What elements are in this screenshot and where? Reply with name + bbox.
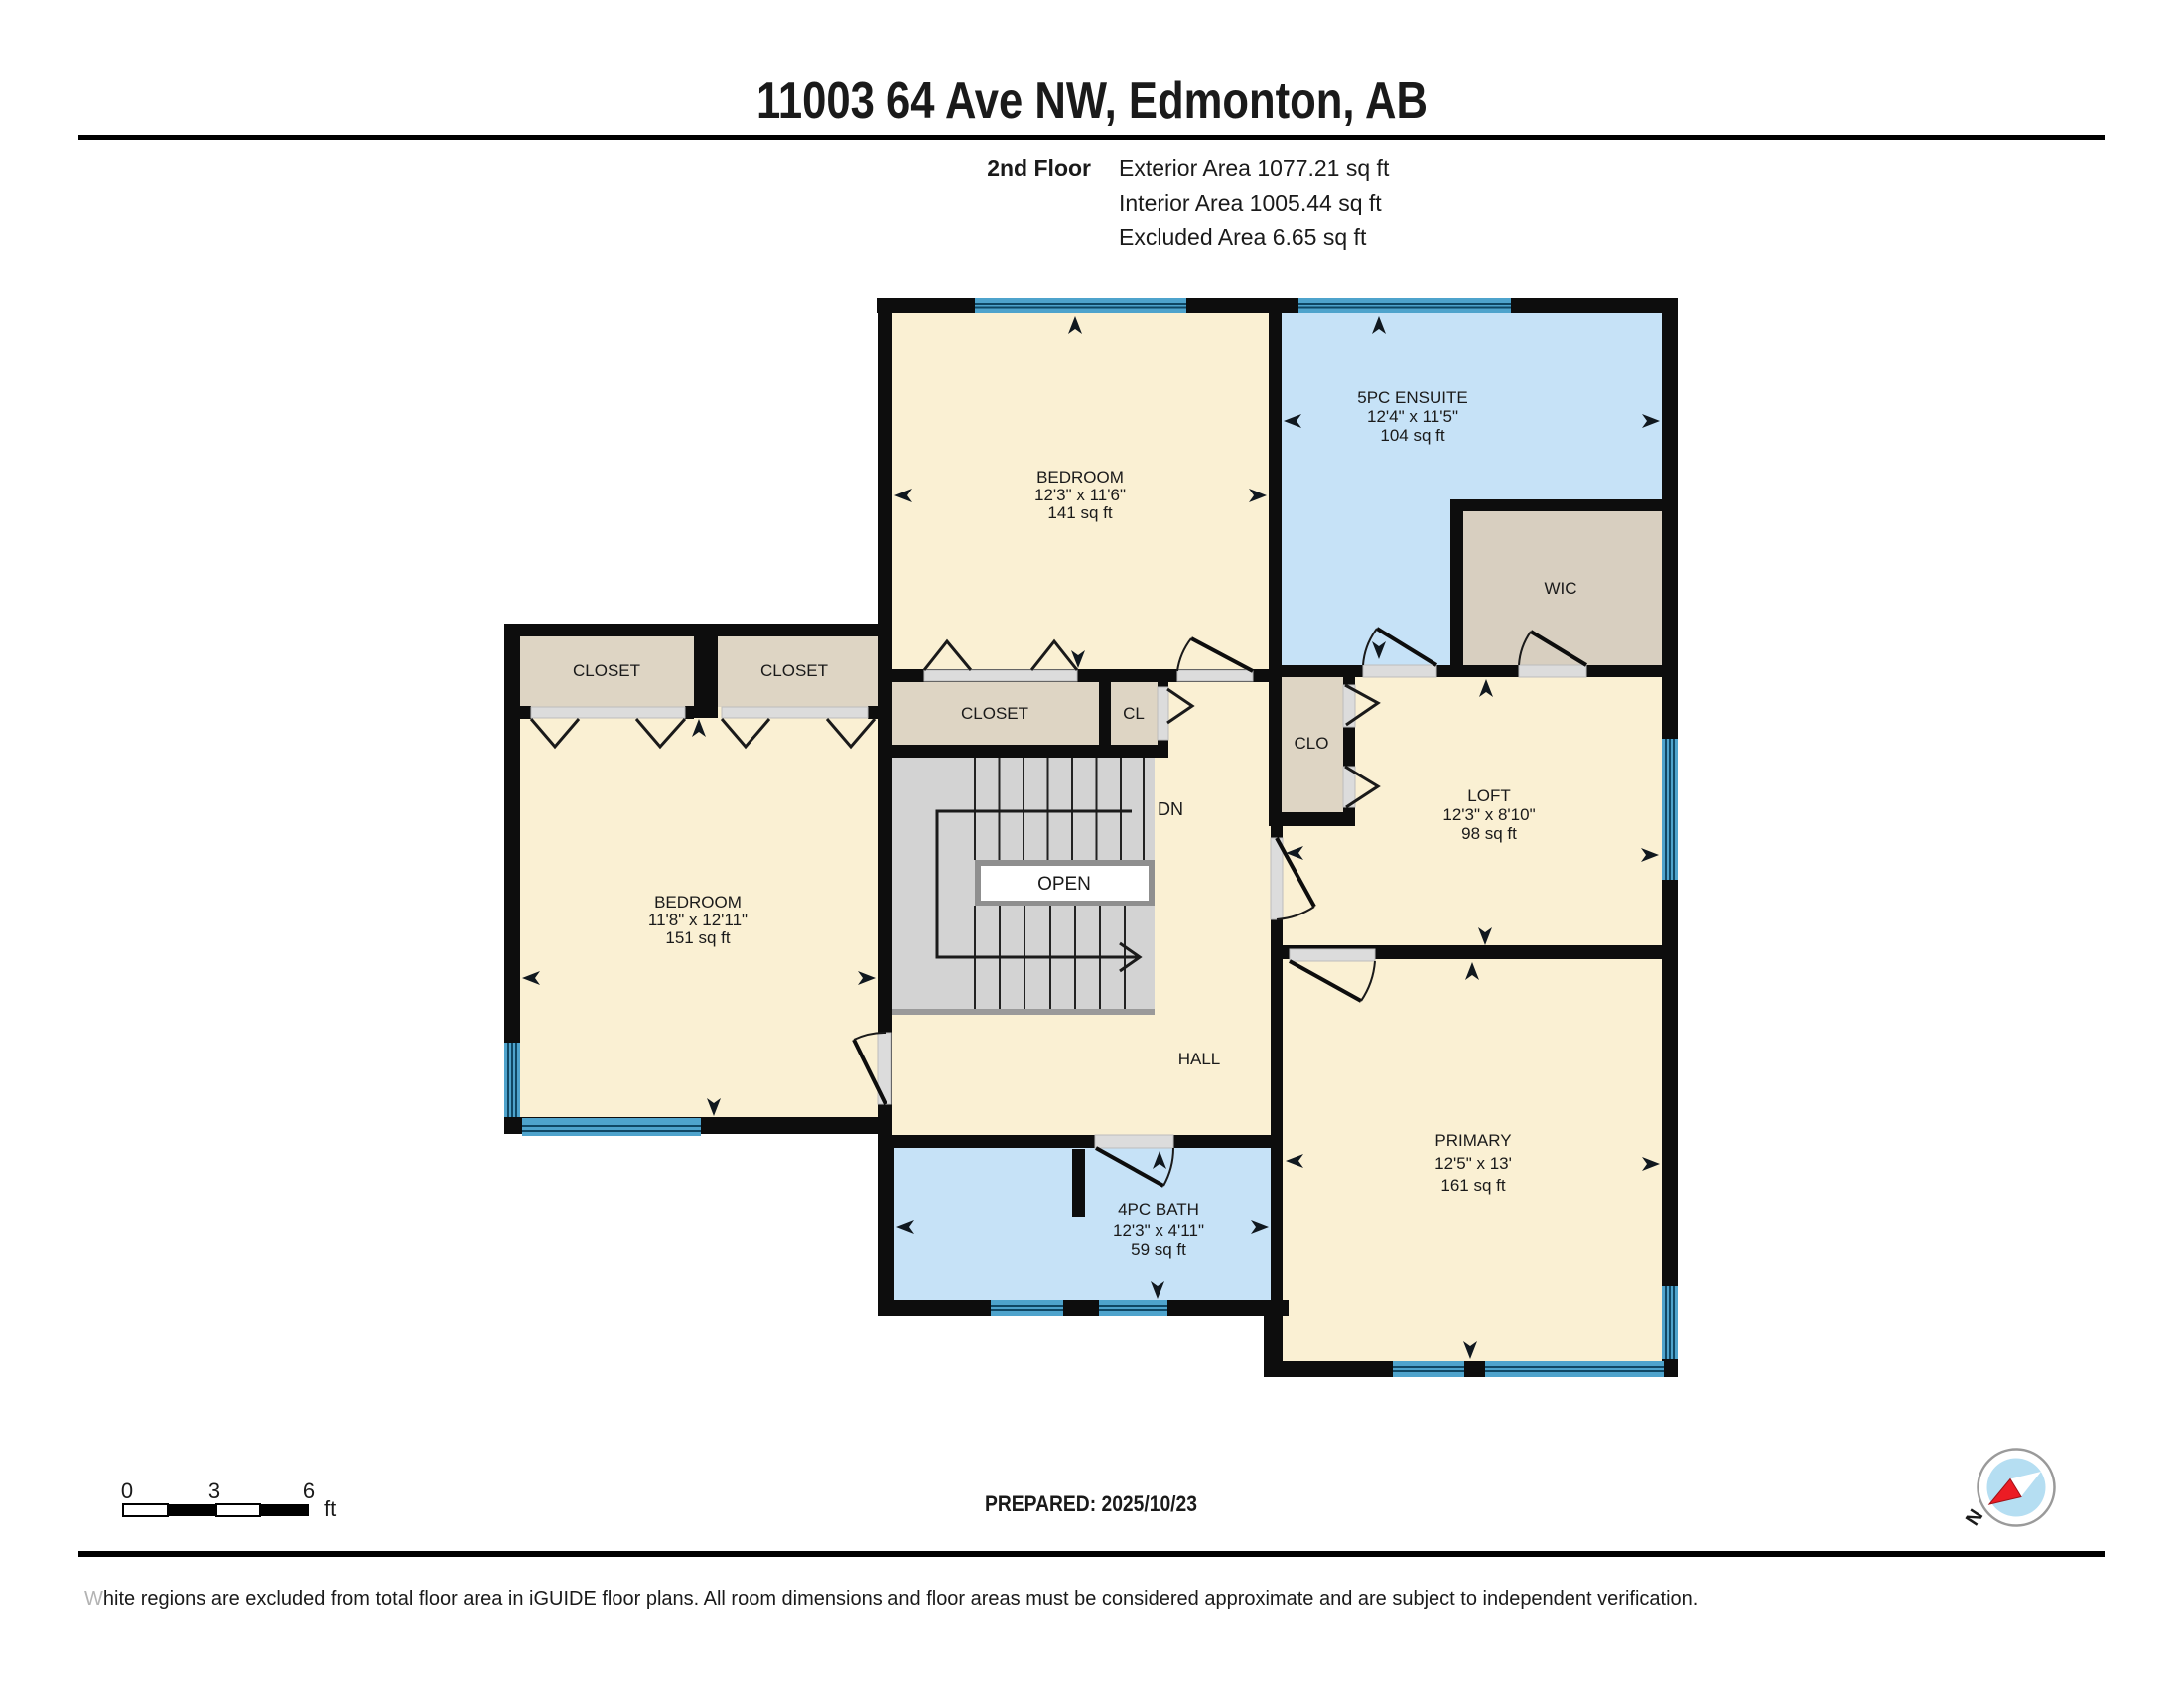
svg-text:161 sq ft: 161 sq ft [1440, 1176, 1505, 1195]
svg-text:Exterior Area 1077.21 sq ft: Exterior Area 1077.21 sq ft [1119, 155, 1390, 181]
svg-text:11003 64 Ave NW, Edmonton, AB: 11003 64 Ave NW, Edmonton, AB [756, 72, 1428, 130]
svg-text:Excluded Area 6.65 sq ft: Excluded Area 6.65 sq ft [1119, 224, 1367, 250]
svg-text:Interior Area 1005.44 sq ft: Interior Area 1005.44 sq ft [1119, 190, 1382, 215]
svg-text:PRIMARY: PRIMARY [1434, 1131, 1511, 1150]
svg-text:DN: DN [1158, 799, 1183, 819]
svg-text:98 sq ft: 98 sq ft [1461, 824, 1517, 843]
svg-text:WIC: WIC [1544, 579, 1576, 598]
svg-text:CLOSET: CLOSET [760, 661, 828, 680]
svg-text:BEDROOM: BEDROOM [654, 893, 742, 912]
svg-text:CL: CL [1123, 704, 1145, 723]
svg-text:ft: ft [324, 1496, 336, 1521]
svg-text:6: 6 [303, 1478, 315, 1503]
svg-text:4PC BATH: 4PC BATH [1118, 1200, 1199, 1219]
svg-text:151 sq ft: 151 sq ft [665, 928, 730, 947]
svg-text:CLOSET: CLOSET [961, 704, 1028, 723]
svg-text:PREPARED: 2025/10/23: PREPARED: 2025/10/23 [985, 1491, 1197, 1516]
svg-text:12'5" x 13': 12'5" x 13' [1434, 1154, 1512, 1173]
svg-text:59 sq ft: 59 sq ft [1131, 1240, 1186, 1259]
svg-text:CLO: CLO [1295, 734, 1329, 753]
svg-text:141 sq ft: 141 sq ft [1047, 503, 1112, 522]
svg-text:104 sq ft: 104 sq ft [1380, 426, 1444, 445]
svg-text:HALL: HALL [1178, 1050, 1221, 1068]
svg-text:3: 3 [208, 1478, 220, 1503]
svg-text:White regions are excluded fro: White regions are excluded from total fl… [84, 1588, 1698, 1610]
svg-text:OPEN: OPEN [1037, 874, 1091, 895]
svg-text:CLOSET: CLOSET [573, 661, 640, 680]
svg-text:12'3" x 8'10": 12'3" x 8'10" [1442, 805, 1535, 824]
svg-text:12'3" x 11'6": 12'3" x 11'6" [1034, 486, 1126, 504]
svg-text:LOFT: LOFT [1467, 786, 1510, 805]
svg-text:BEDROOM: BEDROOM [1036, 468, 1124, 487]
svg-text:5PC ENSUITE: 5PC ENSUITE [1357, 388, 1467, 407]
svg-text:12'4" x 11'5": 12'4" x 11'5" [1367, 407, 1458, 426]
svg-text:2nd Floor: 2nd Floor [987, 155, 1091, 181]
svg-text:12'3" x 4'11": 12'3" x 4'11" [1113, 1221, 1204, 1240]
svg-text:11'8" x 12'11": 11'8" x 12'11" [648, 911, 748, 929]
svg-text:0: 0 [121, 1478, 133, 1503]
